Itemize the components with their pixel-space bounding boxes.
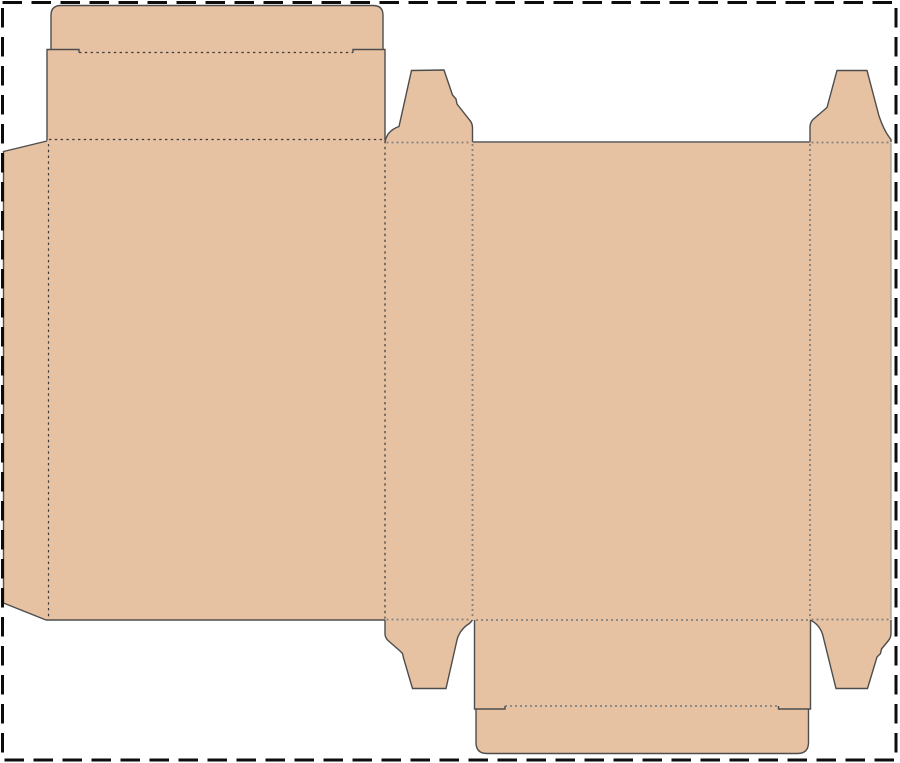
back-panel	[473, 142, 811, 620]
top-tuck-flap	[51, 6, 383, 52]
dieline-sheet	[0, 0, 900, 763]
dust-flap-top-right	[810, 71, 891, 144]
side-panel-left	[385, 142, 473, 620]
dust-flap-bottom-left	[385, 619, 473, 689]
side-panel-right	[810, 142, 891, 620]
bottom-panel	[475, 620, 811, 709]
dieline-canvas	[0, 0, 900, 763]
dust-flap-bottom-right	[810, 619, 891, 689]
front-panel	[47, 140, 385, 621]
lid-panel	[47, 50, 385, 141]
panel-fills	[4, 6, 892, 754]
bottom-tuck-flap	[476, 708, 809, 754]
glue-flap	[4, 141, 50, 620]
